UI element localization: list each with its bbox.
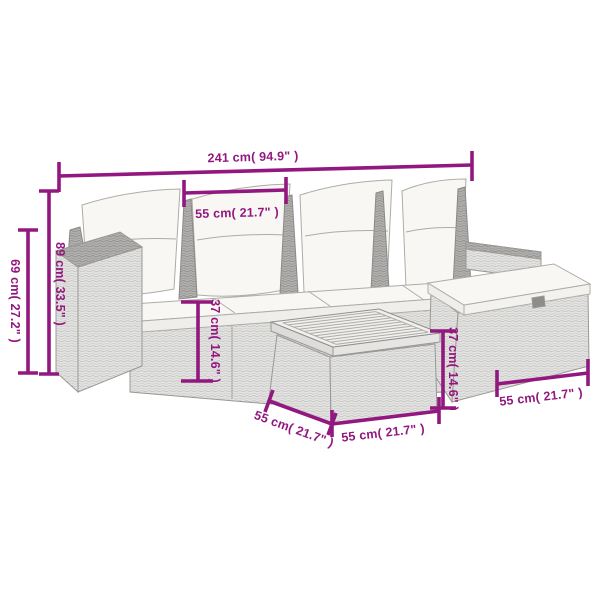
furniture-illustration — [0, 0, 600, 600]
dim-label-seat-base-height: 37 cm( 14.6" ) — [208, 299, 222, 383]
dim-label-seat-width: 55 cm( 21.7" ) — [195, 205, 279, 221]
dim-label-total-height: 69 cm( 27.2" ) — [8, 259, 22, 343]
ottoman-clip — [532, 296, 545, 308]
dim-label-back-height: 89 cm( 33.5" ) — [53, 242, 67, 326]
back-pillow-2 — [192, 184, 290, 296]
product-dimension-diagram: 241 cm( 94.9" ) 55 cm( 21.7" ) 69 cm( 27… — [0, 0, 600, 600]
coffee-table — [269, 309, 440, 424]
sofa-set — [56, 179, 590, 424]
dim-label-ottoman-height: 37 cm( 14.6" ) — [446, 327, 460, 411]
dim-label-overall-width: 241 cm( 94.9" ) — [207, 149, 298, 166]
left-armrest — [56, 232, 142, 392]
